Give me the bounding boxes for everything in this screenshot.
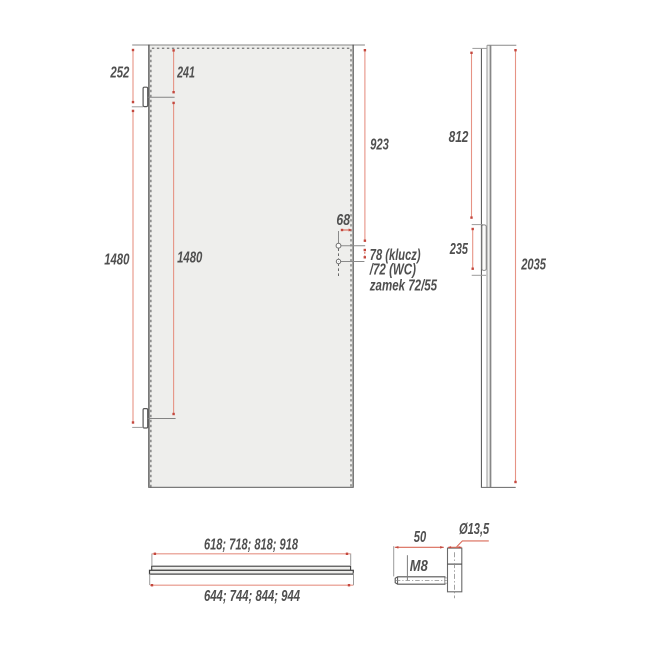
svg-text:68: 68	[336, 212, 350, 229]
svg-text:50: 50	[414, 529, 427, 546]
svg-text:644; 744; 844; 944: 644; 744; 844; 944	[204, 588, 300, 605]
svg-text:M8: M8	[410, 558, 428, 575]
svg-text:zamek 72/55: zamek 72/55	[369, 277, 437, 294]
svg-text:812: 812	[449, 129, 469, 146]
svg-text:1480: 1480	[177, 249, 202, 266]
svg-text:1480: 1480	[104, 251, 129, 268]
svg-text:252: 252	[110, 65, 130, 82]
svg-text:Ø13,5: Ø13,5	[459, 521, 489, 538]
svg-text:241: 241	[176, 65, 194, 82]
svg-text:/72 (WC): /72 (WC)	[369, 262, 416, 279]
svg-text:618; 718; 818; 918: 618; 718; 818; 918	[204, 537, 298, 554]
svg-text:2035: 2035	[520, 257, 546, 274]
svg-text:235: 235	[449, 241, 468, 258]
svg-text:923: 923	[370, 137, 389, 154]
